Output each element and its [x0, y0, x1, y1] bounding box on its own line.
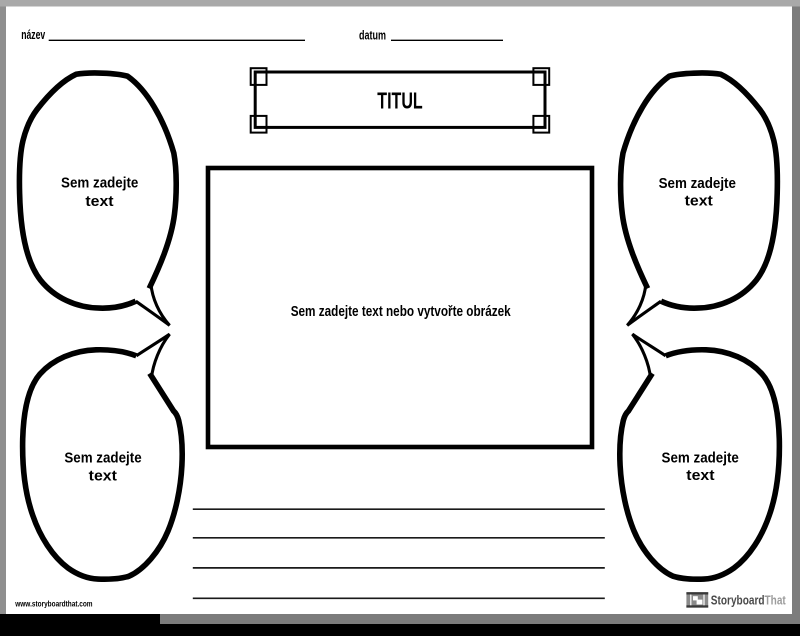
- svg-text:Sem zadejte text nebo vytvořte: Sem zadejte text nebo vytvořte obrázek: [291, 303, 511, 320]
- svg-text:Sem zadejte: Sem zadejte: [659, 176, 736, 192]
- svg-text:StoryboardThat: StoryboardThat: [711, 593, 787, 608]
- svg-text:název: název: [21, 27, 46, 42]
- svg-text:TITUL: TITUL: [377, 87, 422, 113]
- svg-text:Sem zadejte: Sem zadejte: [64, 451, 141, 467]
- svg-text:text: text: [685, 194, 713, 210]
- svg-text:datum: datum: [359, 27, 386, 42]
- svg-text:Sem zadejte: Sem zadejte: [61, 176, 138, 192]
- svg-text:text: text: [89, 469, 117, 485]
- svg-text:text: text: [85, 194, 113, 210]
- svg-text:www.storyboardthat.com: www.storyboardthat.com: [14, 598, 92, 608]
- svg-text:Sem zadejte: Sem zadejte: [662, 451, 739, 467]
- svg-text:text: text: [686, 468, 714, 484]
